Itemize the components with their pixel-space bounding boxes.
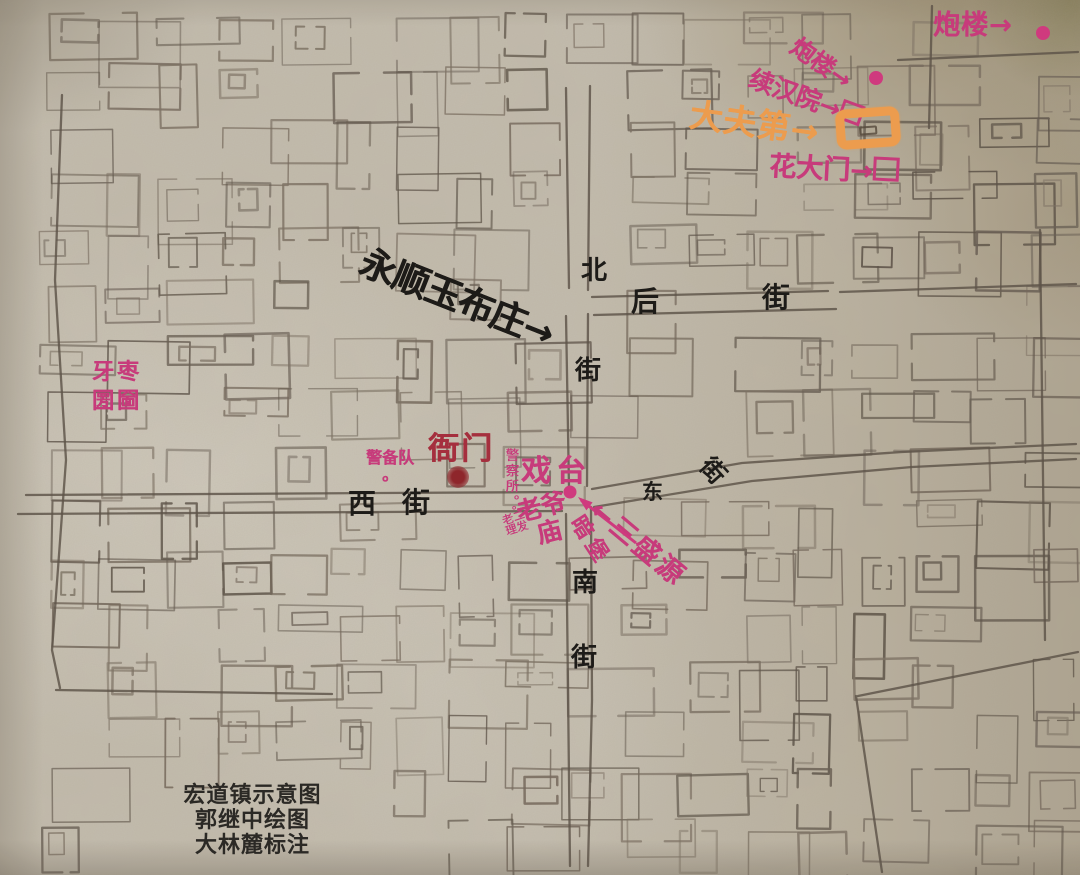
building-mark xyxy=(859,125,878,135)
street-label-north-2: 街 xyxy=(575,358,601,386)
landmark-huadamen: 花大门→ xyxy=(768,151,899,188)
map-drawing xyxy=(0,0,1080,875)
jingbeidui-circle-mark: 。 xyxy=(366,466,414,483)
landmark-yazao-kulue: 牙枣 圐圙 xyxy=(92,358,142,416)
landmark-xitai: 戏台 xyxy=(521,456,591,488)
marker-dot-paolou-far xyxy=(1036,26,1050,40)
caption-title: 宏道镇示意图 xyxy=(140,784,365,809)
street-label-back-2: 街 xyxy=(762,283,790,313)
street-label-east-1: 东 xyxy=(642,481,663,503)
yazao-line2: 圐圙 xyxy=(92,387,142,416)
marker-dot-yamen xyxy=(447,466,469,488)
gate-box-huadamen xyxy=(872,156,899,181)
caption-annotator: 大林麓标注 xyxy=(140,834,365,859)
street-label-back-1: 后 xyxy=(631,287,659,317)
landmark-paolou-far: 炮楼→ xyxy=(933,12,1013,41)
street-label-west-2: 街 xyxy=(402,488,430,518)
jingbeidui-label: 警备队 xyxy=(366,449,414,466)
landmark-jingbeidui: 警备队 。 xyxy=(366,449,414,483)
marker-dot-paolou-near xyxy=(869,71,883,85)
hand-drawn-town-map: 北 街 后 街 西 街 东 街 南 街 永顺玉布庄→ 炮楼→ 炮楼→ 续汉院→ … xyxy=(0,0,1080,875)
street-label-north-1: 北 xyxy=(581,258,607,286)
yazao-line1: 牙枣 xyxy=(92,358,142,387)
street-label-south-2: 街 xyxy=(571,645,597,673)
street-label-west-1: 西 xyxy=(348,489,376,519)
highlight-box-dafudi xyxy=(835,106,902,150)
map-caption: 宏道镇示意图 郭继中绘图 大林麓标注 xyxy=(140,784,365,858)
street-label-south-1: 南 xyxy=(572,570,598,598)
caption-artist: 郭继中绘图 xyxy=(140,809,365,834)
landmark-yamen: 衙门 xyxy=(428,433,494,466)
landmark-huadamen-label: 花大门→ xyxy=(768,151,873,187)
